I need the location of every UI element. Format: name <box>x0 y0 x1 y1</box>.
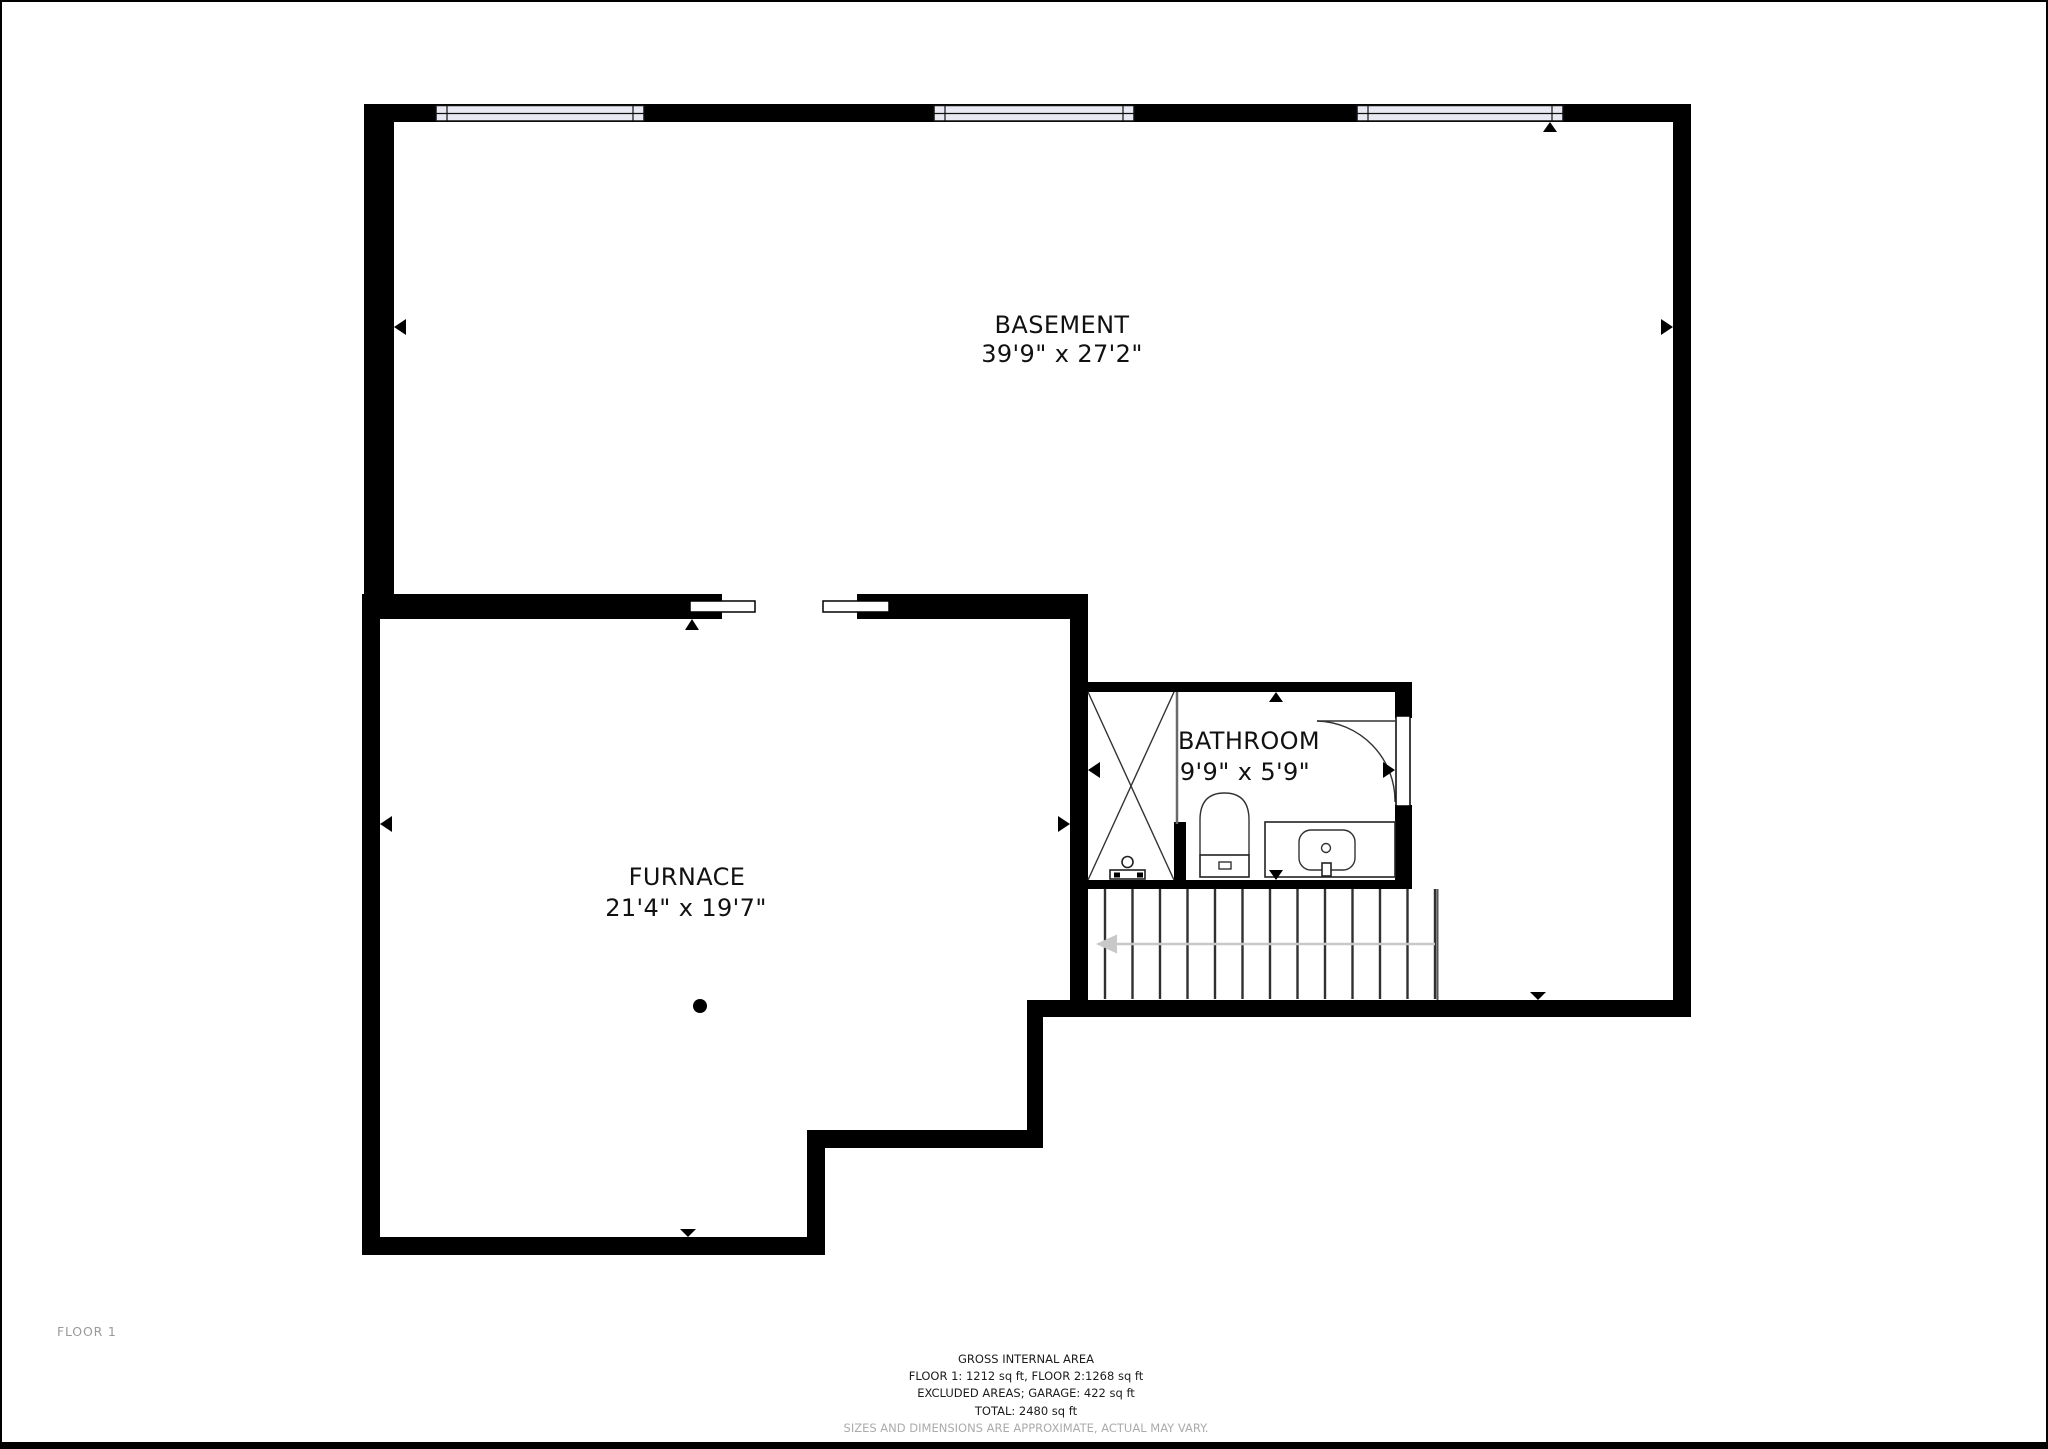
interior-door-opening <box>690 601 889 612</box>
wall-marker-left-icon <box>394 319 406 335</box>
wall-notch-vertical-upper <box>1027 1000 1043 1148</box>
wall-bathroom-bottom <box>1088 880 1412 889</box>
wall-furnace-left <box>362 594 380 1255</box>
wall-marker-bath-up-icon <box>1269 692 1283 702</box>
window-icon-1 <box>436 106 644 122</box>
floor-plan-drawing <box>2 2 2048 1449</box>
wall-bathroom-right-lower <box>1395 805 1412 889</box>
wall-marker-furnace-down-icon <box>680 1229 696 1237</box>
wall-notch-horizontal <box>807 1130 1043 1148</box>
wall-bathroom-right-upper <box>1395 682 1412 718</box>
wall-left-basement <box>364 104 394 619</box>
basement-room-dimensions: 39'9" x 27'2" <box>981 340 1143 368</box>
wall-interior-right-segment <box>857 594 1088 619</box>
shower-icon <box>1088 692 1177 880</box>
wall-marker-shower-left-icon <box>1088 762 1100 778</box>
furnace-room-dimensions: 21'4" x 19'7" <box>605 894 767 922</box>
wall-marker-furnace-right-icon <box>1058 816 1070 832</box>
summary-total: TOTAL: 2480 sq ft <box>2 1403 2048 1420</box>
wall-shower-divider-stub <box>1174 822 1186 880</box>
bathroom-door-arc-icon <box>1317 721 1395 802</box>
area-summary: GROSS INTERNAL AREA FLOOR 1: 1212 sq ft,… <box>2 1351 2048 1437</box>
shower-valve-knob <box>1122 857 1133 868</box>
floor-number-label: FLOOR 1 <box>57 1324 117 1339</box>
summary-disclaimer: SIZES AND DIMENSIONS ARE APPROXIMATE, AC… <box>2 1420 2048 1437</box>
wall-notch-vertical-lower <box>807 1130 825 1255</box>
sink-vanity-icon <box>1265 822 1395 877</box>
wall-marker-door-up-icon <box>685 619 699 630</box>
door-leaf-left <box>690 601 755 612</box>
summary-floors: FLOOR 1: 1212 sq ft, FLOOR 2:1268 sq ft <box>2 1368 2048 1385</box>
wall-bottom-stairs <box>1027 1000 1691 1017</box>
window-icon-3 <box>1357 106 1563 122</box>
wall-marker-up-icon <box>1543 122 1557 132</box>
bathroom-room-dimensions: 9'9" x 5'9" <box>1180 758 1310 786</box>
floor-drain-dot <box>693 999 707 1013</box>
wall-marker-right-icon <box>1661 319 1673 335</box>
wall-furnace-bottom <box>362 1237 825 1255</box>
bottom-border-bar <box>2 1442 2048 1447</box>
bathroom-room-label: BATHROOM <box>1178 727 1320 755</box>
walls <box>362 104 1691 1255</box>
summary-excluded: EXCLUDED AREAS; GARAGE: 422 sq ft <box>2 1385 2048 1402</box>
bathroom-door <box>1317 716 1410 806</box>
bathroom-door-opening <box>1396 716 1410 806</box>
wall-marker-furnace-left-icon <box>380 816 392 832</box>
wall-bathroom-top <box>1088 682 1412 692</box>
windows <box>436 106 1563 122</box>
wall-marker-bath-right-icon <box>1383 762 1395 778</box>
stairs <box>1096 889 1438 1000</box>
wall-hall-left <box>1070 594 1088 1017</box>
summary-title: GROSS INTERNAL AREA <box>2 1351 2048 1368</box>
wall-interior-left-segment <box>362 594 722 619</box>
wall-right <box>1673 104 1691 1017</box>
furnace-room-label: FURNACE <box>629 863 746 891</box>
stair-arrow-head-icon <box>1096 935 1117 954</box>
window-icon-2 <box>934 106 1134 122</box>
basement-room-label: BASEMENT <box>995 311 1130 339</box>
toilet-icon <box>1200 793 1249 877</box>
floor-plan-page: BASEMENT 39'9" x 27'2" FURNACE 21'4" x 1… <box>0 0 2048 1449</box>
wall-markers <box>380 122 1673 1237</box>
wall-marker-bottom-down-icon <box>1530 992 1546 1000</box>
door-leaf-right <box>823 601 889 612</box>
